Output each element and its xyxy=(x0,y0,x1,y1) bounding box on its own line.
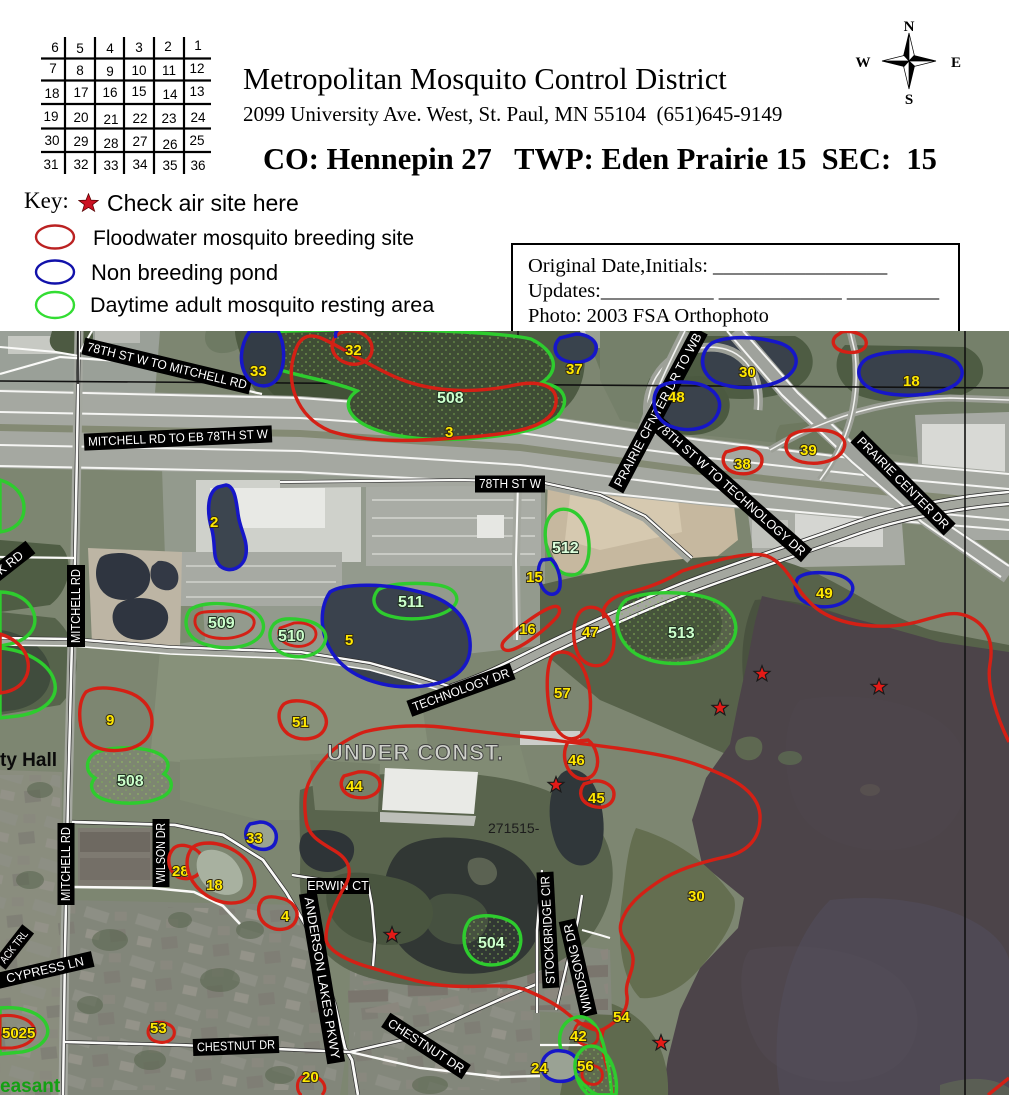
svg-text:37: 37 xyxy=(566,361,583,378)
svg-text:easant: easant xyxy=(0,1076,61,1095)
svg-text:9: 9 xyxy=(106,712,114,729)
svg-text:57: 57 xyxy=(554,685,571,702)
svg-text:30: 30 xyxy=(688,888,705,905)
svg-text:E: E xyxy=(951,55,961,71)
svg-text:15: 15 xyxy=(131,84,146,99)
svg-text:34: 34 xyxy=(132,157,148,172)
svg-text:508: 508 xyxy=(437,390,464,407)
svg-text:30: 30 xyxy=(739,364,756,381)
svg-text:16: 16 xyxy=(519,621,536,638)
svg-text:20: 20 xyxy=(302,1069,319,1086)
svg-text:512: 512 xyxy=(552,540,579,557)
svg-text:30: 30 xyxy=(44,133,59,148)
svg-text:510: 510 xyxy=(278,628,305,645)
svg-text:ERWIN CT: ERWIN CT xyxy=(307,879,369,893)
svg-text:513: 513 xyxy=(668,625,695,642)
svg-text:1: 1 xyxy=(194,38,202,53)
svg-text:MITCHELL RD: MITCHELL RD xyxy=(59,827,73,901)
svg-text:511: 511 xyxy=(398,594,424,611)
svg-text:39: 39 xyxy=(800,442,817,459)
svg-text:35: 35 xyxy=(162,158,177,173)
svg-text:271515-: 271515- xyxy=(488,820,540,836)
svg-text:33: 33 xyxy=(103,158,118,173)
svg-text:5: 5 xyxy=(76,41,84,56)
svg-text:18: 18 xyxy=(206,877,223,894)
svg-text:49: 49 xyxy=(816,585,833,602)
svg-text:53: 53 xyxy=(150,1020,167,1037)
svg-text:20: 20 xyxy=(73,110,88,125)
svg-text:32: 32 xyxy=(73,157,88,172)
svg-text:24: 24 xyxy=(531,1060,548,1077)
svg-text:26: 26 xyxy=(162,137,177,152)
svg-text:44: 44 xyxy=(346,778,363,795)
svg-text:8: 8 xyxy=(76,63,84,78)
svg-text:32: 32 xyxy=(345,342,362,359)
svg-text:9: 9 xyxy=(106,64,114,79)
svg-text:47: 47 xyxy=(582,624,599,641)
svg-text:6: 6 xyxy=(51,40,59,55)
svg-text:56: 56 xyxy=(577,1058,594,1075)
svg-text:5: 5 xyxy=(345,632,353,649)
svg-text:17: 17 xyxy=(73,85,88,100)
svg-text:23: 23 xyxy=(161,111,176,126)
svg-text:54: 54 xyxy=(613,1009,630,1026)
svg-text:3: 3 xyxy=(135,40,143,55)
svg-text:UNDER CONST.: UNDER CONST. xyxy=(327,740,504,765)
svg-text:N: N xyxy=(904,19,915,35)
svg-text:48: 48 xyxy=(668,389,685,406)
svg-text:5025: 5025 xyxy=(2,1025,35,1042)
svg-text:46: 46 xyxy=(568,752,585,769)
svg-text:CHESTNUT DR: CHESTNUT DR xyxy=(197,1038,275,1055)
svg-text:51: 51 xyxy=(292,714,309,731)
svg-text:11: 11 xyxy=(162,63,176,78)
svg-text:4: 4 xyxy=(106,41,114,56)
svg-text:78TH ST W: 78TH ST W xyxy=(479,477,541,491)
svg-text:12: 12 xyxy=(189,61,204,76)
svg-text:504: 504 xyxy=(478,935,505,952)
svg-text:4: 4 xyxy=(281,908,290,925)
svg-text:509: 509 xyxy=(208,615,235,632)
svg-text:33: 33 xyxy=(250,363,267,380)
svg-text:27: 27 xyxy=(132,134,147,149)
svg-text:42: 42 xyxy=(570,1028,587,1045)
svg-text:7: 7 xyxy=(49,61,57,76)
svg-text:18: 18 xyxy=(903,373,920,390)
svg-text:WILSON DR: WILSON DR xyxy=(154,823,168,883)
svg-text:45: 45 xyxy=(588,790,605,807)
svg-text:14: 14 xyxy=(162,87,178,102)
svg-text:15: 15 xyxy=(526,569,543,586)
svg-text:24: 24 xyxy=(190,110,206,125)
svg-text:MITCHELL RD: MITCHELL RD xyxy=(69,569,83,643)
svg-text:22: 22 xyxy=(132,111,147,126)
svg-text:28: 28 xyxy=(103,136,118,151)
svg-text:31: 31 xyxy=(43,157,58,172)
svg-text:ty Hall: ty Hall xyxy=(0,750,57,771)
svg-text:10: 10 xyxy=(131,63,146,78)
svg-text:508: 508 xyxy=(117,773,144,790)
svg-text:21: 21 xyxy=(103,112,118,127)
svg-text:19: 19 xyxy=(43,109,58,124)
svg-text:W: W xyxy=(856,55,871,71)
svg-text:36: 36 xyxy=(190,158,205,173)
svg-text:18: 18 xyxy=(44,86,59,101)
svg-text:29: 29 xyxy=(73,134,88,149)
svg-text:2: 2 xyxy=(164,39,172,54)
svg-text:2: 2 xyxy=(210,514,218,531)
svg-text:S: S xyxy=(905,92,913,108)
svg-text:38: 38 xyxy=(734,456,751,473)
svg-text:25: 25 xyxy=(189,133,204,148)
svg-text:16: 16 xyxy=(102,85,117,100)
svg-text:3: 3 xyxy=(445,424,453,441)
svg-text:33: 33 xyxy=(246,830,263,847)
svg-text:13: 13 xyxy=(189,84,204,99)
